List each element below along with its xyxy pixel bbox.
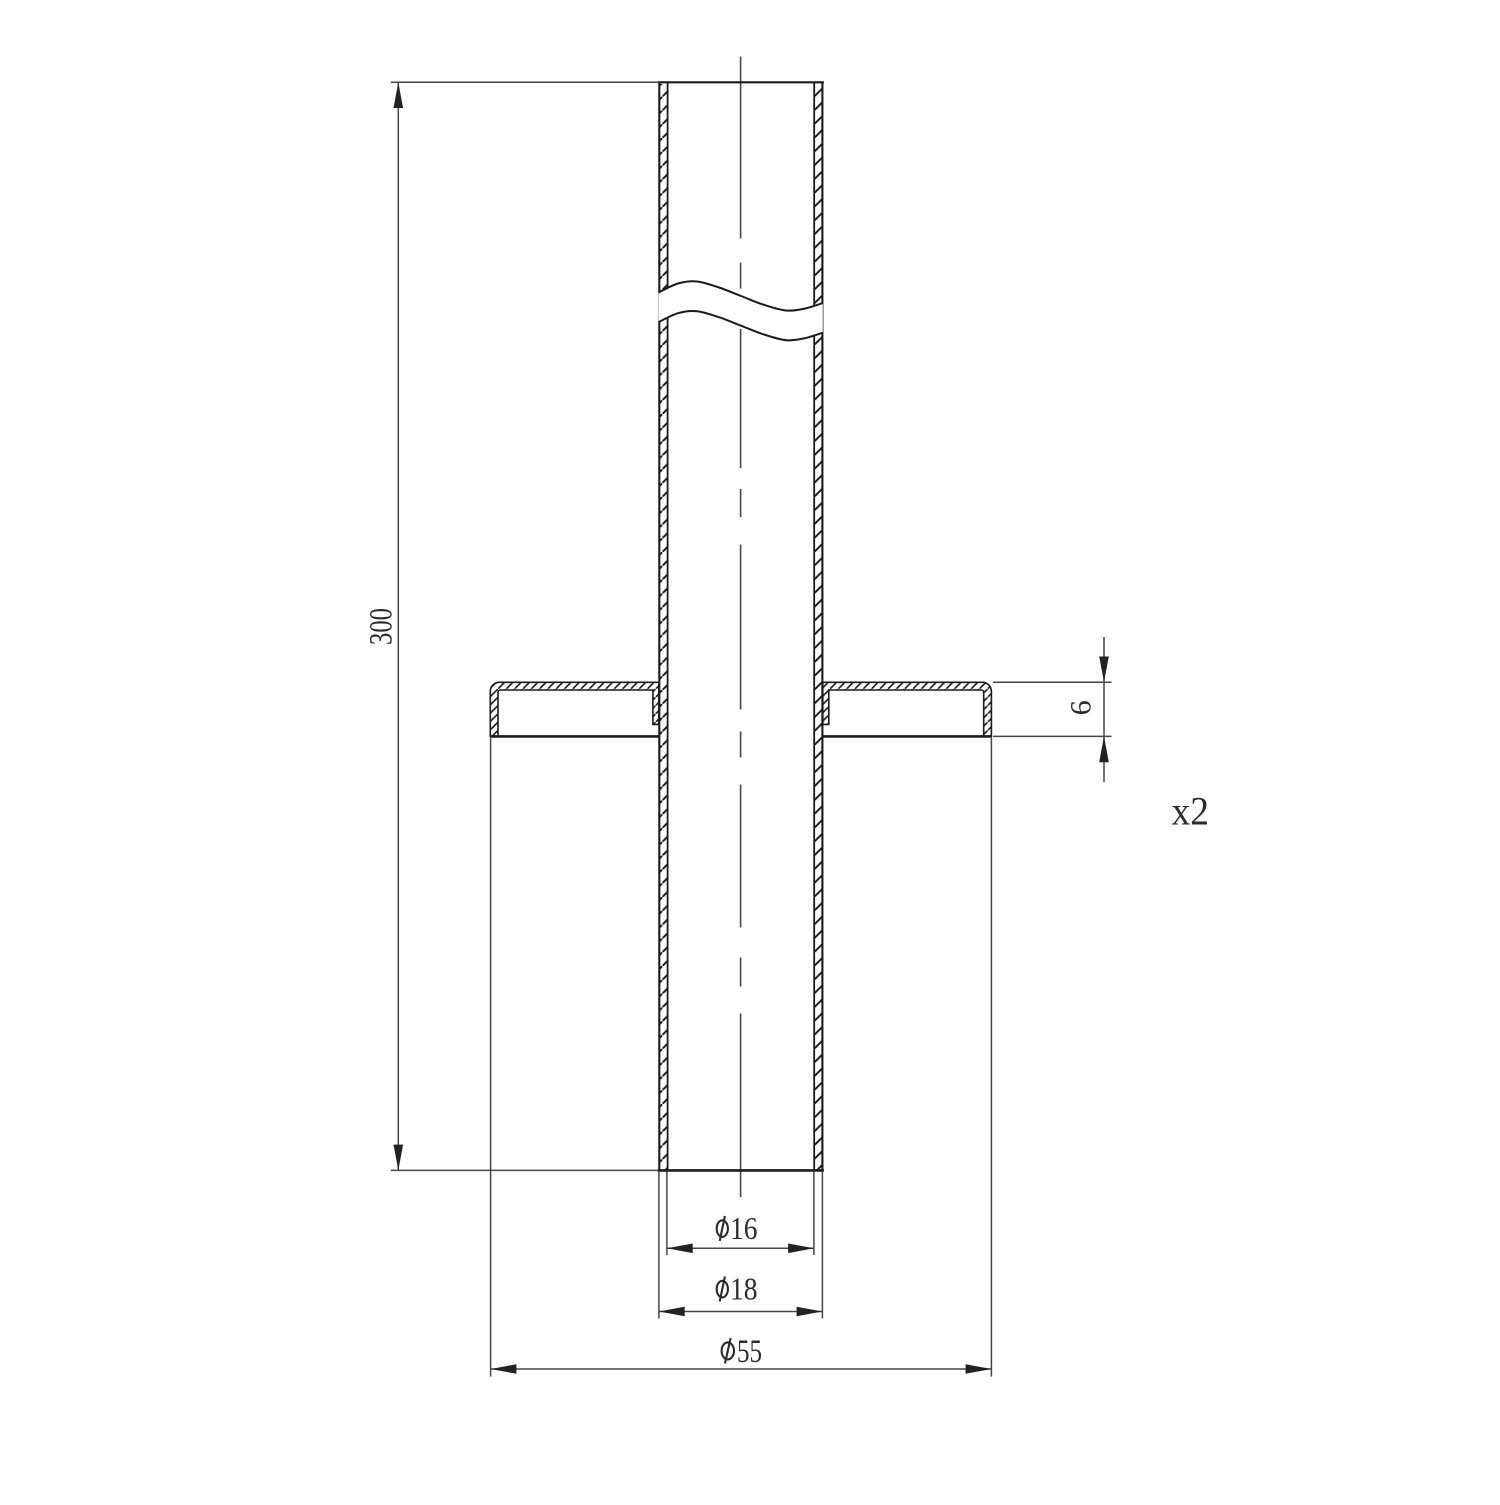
svg-text:16: 16 (730, 1210, 758, 1246)
svg-text:x2: x2 (1172, 789, 1210, 834)
svg-text:6: 6 (1065, 700, 1098, 715)
svg-text:18: 18 (730, 1271, 758, 1307)
svg-text:300: 300 (363, 608, 399, 645)
svg-text:55: 55 (737, 1334, 762, 1370)
